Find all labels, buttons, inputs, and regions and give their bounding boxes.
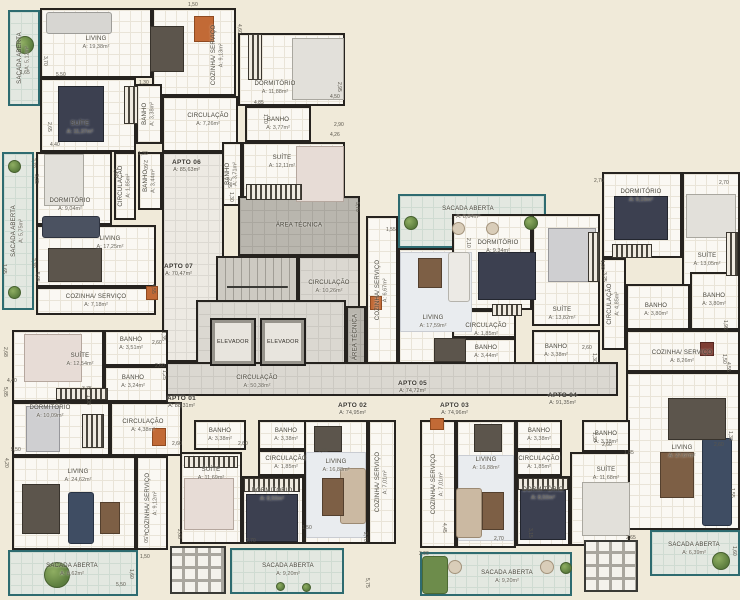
dimension-label: 5,75 (364, 578, 370, 588)
dimension-label: 5,70 (354, 202, 360, 212)
dimension-label: 2,68 (176, 529, 182, 539)
dimension-label: 1,30 (727, 431, 733, 441)
dimension-label: 1,50 (721, 354, 727, 364)
dimension-label: 1,55 (386, 227, 396, 233)
dimension-label: 2,85 (226, 178, 232, 188)
dimension-label: 3,35 (33, 174, 39, 184)
dimension-label: 2,68 (2, 347, 8, 357)
dimension-label: 4,40 (50, 142, 60, 148)
dimension-label: 5,50 (56, 72, 66, 78)
dimension-label: 1,10 (262, 114, 268, 124)
dimension-label: 4,20 (3, 458, 9, 468)
dimension-label: 4,60 (236, 24, 242, 34)
dimension-label: 1,65 (1, 264, 7, 274)
dimension-label: 2,95 (336, 82, 342, 92)
dimension-label: 3,25 (601, 272, 607, 282)
dimension-label: 1,50 (140, 554, 150, 560)
dimension-label: 2,60 (152, 340, 162, 346)
dimension-label: 4,50 (142, 533, 148, 543)
dimension-label: 1,90 (112, 168, 118, 178)
dimension-label: 2,60 (155, 363, 165, 369)
dimension-label: 5,50 (11, 447, 21, 453)
dimension-label: 1,08 (85, 395, 91, 405)
dimension-label: 5,85 (2, 387, 8, 397)
dimension-label: 1,50 (302, 525, 312, 531)
dimension-label: 1,60 (731, 546, 737, 556)
dimension-label: 2,70 (594, 178, 604, 184)
dimension-label: 4,55 (150, 284, 156, 294)
dimension-label: 2,60 (714, 442, 724, 448)
dimension-label: 4,50 (330, 94, 340, 100)
dimension-label: 2,90 (334, 122, 344, 128)
dimension-label: 1,30 (139, 80, 149, 86)
dimension-label: 1,60 (128, 569, 134, 579)
floor-plan: ELEVADORELEVADOR SACADA ABERTAA: 5,12m²L… (0, 0, 740, 600)
dimension-label: 4,45 (441, 523, 447, 533)
dimension-label: 1,25 (161, 370, 167, 380)
dimension-label: 1,30 (228, 192, 234, 202)
dimension-label: 1,55 (729, 488, 735, 498)
dimension-label: 2,90 (419, 551, 429, 557)
dimension-label: 2,70 (246, 538, 256, 544)
dimension-label: 2,60 (602, 442, 612, 448)
dimension-label: 2,65 (626, 535, 636, 541)
dimension-label: 2,60 (172, 441, 182, 447)
dimension-label: 2,65 (46, 122, 52, 132)
dimension-label: 1,35 (160, 331, 166, 341)
dimension-label: 2,70 (494, 536, 504, 542)
dimension-label: 2,70 (30, 158, 36, 168)
dimension-label: 3,75 (82, 386, 92, 392)
dimension-label: 5,50 (116, 582, 126, 588)
dimension-label: 2,60 (238, 441, 248, 447)
dimension-label: 4,85 (254, 100, 264, 106)
dimension-label: 4,40 (7, 378, 17, 384)
dimension-label: 1,50 (188, 2, 198, 8)
dimension-label: 1,30 (138, 151, 148, 157)
dimension-label: 1,95 (722, 320, 728, 330)
dimension-label: 2,30 (30, 258, 36, 268)
dimension-label: 1,30 (591, 353, 597, 363)
dimension-label: 5,95 (34, 272, 40, 282)
dimension-label: 3,15 (527, 528, 533, 538)
dimension-label: 2,10 (465, 238, 471, 248)
dimension-label: 2,60 (142, 160, 148, 170)
dimension-label: 4,55 (725, 362, 731, 372)
dimension-label: 1,65 (20, 70, 30, 76)
dimension-label: 1,85 (318, 448, 328, 454)
dimension-label: 1,90 (599, 260, 605, 270)
dimension-label: 1,30 (591, 432, 597, 442)
dimension-label: 2,60 (582, 345, 592, 351)
dimension-label: 2,70 (719, 180, 729, 186)
dimension-label: 1,85 (624, 450, 634, 456)
dimensions-layer: 1,653,705,501,504,601,302,654,404,851,10… (0, 0, 740, 600)
dimension-label: 3,70 (42, 56, 48, 66)
dimension-label: 2,70 (362, 532, 368, 542)
dimension-label: 4,26 (330, 132, 340, 138)
